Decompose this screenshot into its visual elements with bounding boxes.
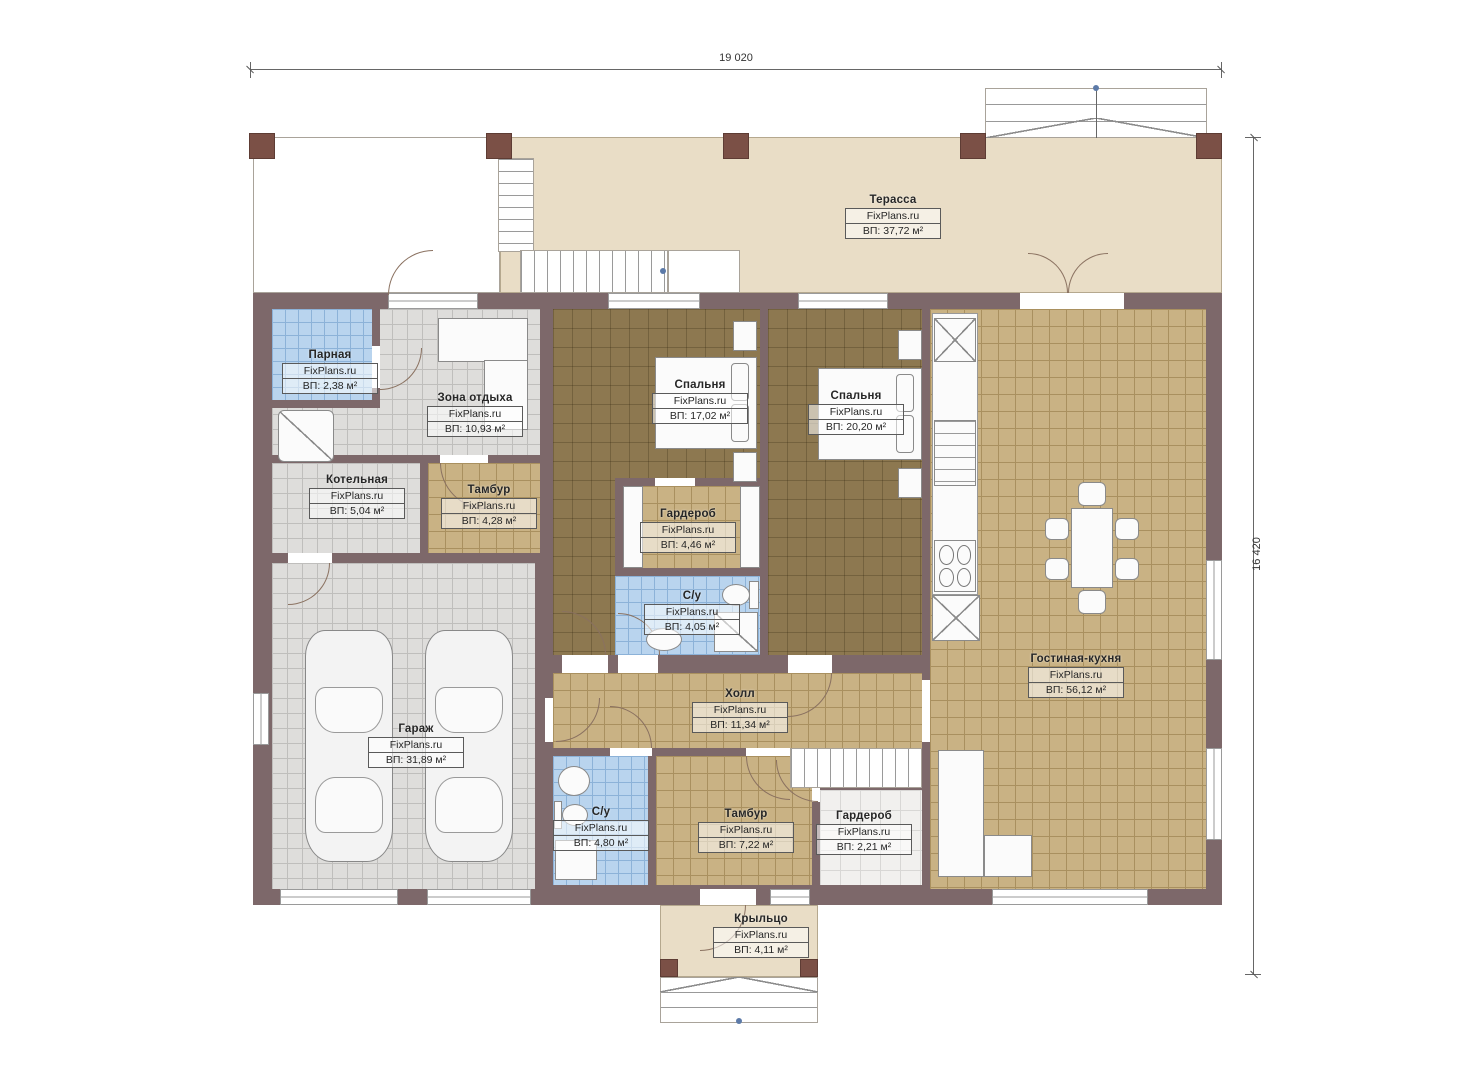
door-opening (440, 455, 488, 463)
dimension-width-label: 19 020 (719, 52, 753, 64)
toilet-tank (749, 581, 759, 609)
steps-v-right (1096, 118, 1207, 138)
room-label-vestibule-1: Тамбур FixPlans.ru ВП: 4,28 м² (441, 484, 537, 529)
direction-dot (1093, 85, 1099, 91)
watermark: FixPlans.ru (368, 737, 464, 753)
watermark: FixPlans.ru (698, 822, 794, 838)
door-opening (610, 748, 652, 756)
terrace-side-stairs (498, 158, 534, 252)
window-living (992, 889, 1148, 905)
stair-landing (668, 250, 740, 293)
room-label-vestibule-2: Тамбур FixPlans.ru ВП: 7,22 м² (698, 808, 794, 853)
window-bedroom-1 (608, 293, 700, 309)
door-opening (655, 478, 695, 486)
room-area: ВП: 20,20 м² (808, 419, 904, 435)
sink (558, 766, 590, 796)
room-label-wardrobe-1: Гардероб FixPlans.ru ВП: 4,46 м² (640, 508, 736, 553)
window-bedroom-2 (798, 293, 888, 309)
watermark: FixPlans.ru (282, 363, 378, 379)
room-area: ВП: 56,12 м² (1028, 682, 1124, 698)
floor-plan: 19 020 16 420 (0, 0, 1474, 1080)
terrace-door-opening (1020, 293, 1124, 309)
room-label-wardrobe-2: Гардероб FixPlans.ru ВП: 2,21 м² (816, 810, 912, 855)
direction-dot (736, 1018, 742, 1024)
room-area: ВП: 4,28 м² (441, 513, 537, 529)
watermark: FixPlans.ru (553, 820, 649, 836)
front-door-opening (388, 293, 478, 309)
sofa (438, 318, 528, 362)
room-name: Котельная (309, 474, 405, 486)
nightstand (898, 330, 922, 360)
wardrobe-shelf (740, 486, 760, 568)
steps-v-left (985, 118, 1096, 138)
door-opening (746, 748, 790, 756)
entrance-door-opening (700, 889, 756, 905)
corner-sofa (938, 750, 984, 877)
room-label-steam-room: Парная FixPlans.ru ВП: 2,38 м² (282, 349, 378, 394)
window-vestibule-2 (770, 889, 810, 905)
sink-unit (932, 595, 980, 641)
nightstand (733, 452, 757, 482)
oven-cabinet (934, 420, 976, 486)
stove (934, 540, 976, 592)
porch-column (660, 959, 678, 977)
column (723, 133, 749, 159)
watermark: FixPlans.ru (309, 488, 405, 504)
direction-dot (660, 268, 666, 274)
room-name: Гостиная-кухня (1028, 653, 1124, 665)
column (249, 133, 275, 159)
room-label-terrace: Терасса FixPlans.ru ВП: 37,72 м² (845, 194, 941, 239)
room-name: Зона отдыха (427, 392, 523, 404)
room-area: ВП: 10,93 м² (427, 421, 523, 437)
room-area: ВП: 4,05 м² (644, 619, 740, 635)
room-name: С/у (644, 590, 740, 602)
room-name: Крыльцо (713, 913, 809, 925)
chair (1078, 590, 1106, 614)
door-opening (288, 553, 332, 563)
room-label-porch: Крыльцо FixPlans.ru ВП: 4,11 м² (713, 913, 809, 958)
room-name: Спальня (808, 390, 904, 402)
column (486, 133, 512, 159)
dining-table (1071, 508, 1113, 588)
room-name: Холл (692, 688, 788, 700)
garage-door-1 (280, 889, 398, 905)
room-area: ВП: 11,34 м² (692, 717, 788, 733)
watermark: FixPlans.ru (652, 393, 748, 409)
chair (1045, 518, 1069, 540)
room-label-bathroom-2: С/у FixPlans.ru ВП: 4,80 м² (553, 806, 649, 851)
watermark: FixPlans.ru (441, 498, 537, 514)
shower-tray (278, 410, 334, 462)
room-label-hall: Холл FixPlans.ru ВП: 11,34 м² (692, 688, 788, 733)
door-opening (545, 698, 553, 742)
open-deck (253, 137, 500, 293)
room-area: ВП: 2,21 м² (816, 839, 912, 855)
room-label-boiler: Котельная FixPlans.ru ВП: 5,04 м² (309, 474, 405, 519)
wall (272, 400, 380, 408)
watermark: FixPlans.ru (1028, 667, 1124, 683)
room-name: Парная (282, 349, 378, 361)
room-name: Тамбур (441, 484, 537, 496)
room-name: Спальня (652, 379, 748, 391)
column (960, 133, 986, 159)
terrace-lower-stairs (520, 250, 668, 293)
room-label-bedroom-1: Спальня FixPlans.ru ВП: 17,02 м² (652, 379, 748, 424)
wall (615, 568, 760, 576)
room-name: Гардероб (640, 508, 736, 520)
room-name: Гардероб (816, 810, 912, 822)
watermark: FixPlans.ru (692, 702, 788, 718)
passage-opening (922, 680, 930, 742)
room-area: ВП: 4,46 м² (640, 537, 736, 553)
room-area: ВП: 5,04 м² (309, 503, 405, 519)
room-name: Терасса (845, 194, 941, 206)
room-name: Тамбур (698, 808, 794, 820)
window-garage (253, 693, 269, 745)
room-area: ВП: 17,02 м² (652, 408, 748, 424)
watermark: FixPlans.ru (427, 406, 523, 422)
room-area: ВП: 4,80 м² (553, 835, 649, 851)
interior-stairs (790, 748, 922, 788)
room-area: ВП: 7,22 м² (698, 837, 794, 853)
watermark: FixPlans.ru (644, 604, 740, 620)
room-area: ВП: 2,38 м² (282, 378, 378, 394)
room-name: Гараж (368, 723, 464, 735)
room-area: ВП: 4,11 м² (713, 942, 809, 958)
column (1196, 133, 1222, 159)
chair (1115, 558, 1139, 580)
watermark: FixPlans.ru (816, 824, 912, 840)
watermark: FixPlans.ru (808, 404, 904, 420)
nightstand (898, 468, 922, 498)
chair (1045, 558, 1069, 580)
room-area: ВП: 37,72 м² (845, 223, 941, 239)
room-area: ВП: 31,89 м² (368, 752, 464, 768)
room-label-living-kitchen: Гостиная-кухня FixPlans.ru ВП: 56,12 м² (1028, 653, 1124, 698)
dimension-line-top (250, 69, 1222, 70)
corner-sofa (984, 835, 1032, 877)
room-name: С/у (553, 806, 649, 818)
garage-door-2 (427, 889, 531, 905)
steps-v-left (660, 977, 739, 992)
door-opening (562, 655, 608, 673)
fridge (934, 318, 976, 362)
room-label-bedroom-2: Спальня FixPlans.ru ВП: 20,20 м² (808, 390, 904, 435)
watermark: FixPlans.ru (640, 522, 736, 538)
dimension-height-label: 16 420 (1251, 537, 1263, 571)
window-living-right-2 (1206, 748, 1222, 840)
chair (1115, 518, 1139, 540)
door-opening (618, 655, 658, 673)
watermark: FixPlans.ru (713, 927, 809, 943)
nightstand (733, 321, 757, 351)
chair (1078, 482, 1106, 506)
steps-center-line (1096, 88, 1097, 138)
steps-v-right (739, 977, 818, 992)
door-opening (788, 655, 832, 673)
room-label-rest-zone: Зона отдыха FixPlans.ru ВП: 10,93 м² (427, 392, 523, 437)
room-label-garage: Гараж FixPlans.ru ВП: 31,89 м² (368, 723, 464, 768)
room-label-bathroom-1: С/у FixPlans.ru ВП: 4,05 м² (644, 590, 740, 635)
porch-column (800, 959, 818, 977)
watermark: FixPlans.ru (845, 208, 941, 224)
window-living-right-1 (1206, 560, 1222, 660)
